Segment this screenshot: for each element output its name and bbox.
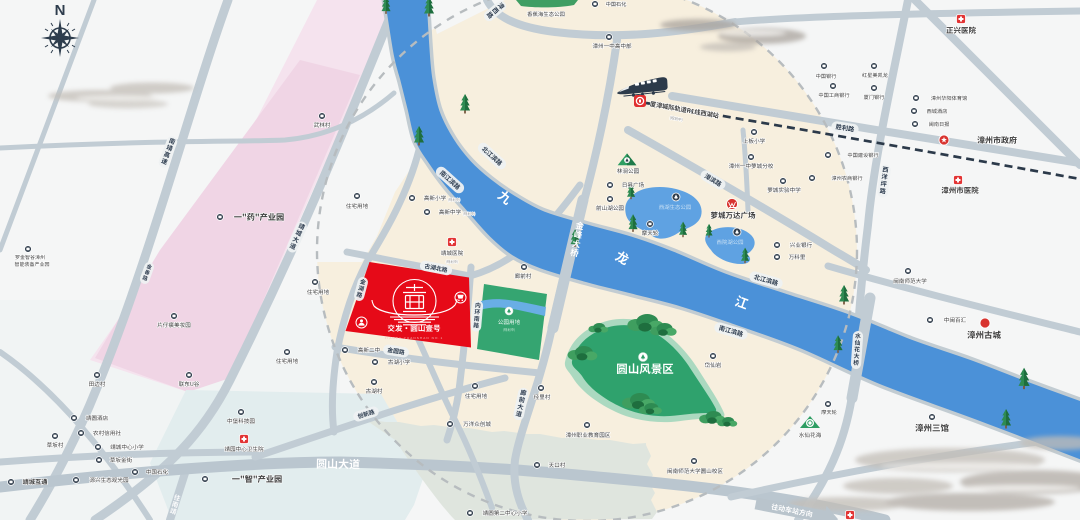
- svg-text:N: N: [55, 2, 66, 19]
- svg-text:JIAOFA YUANSHAN NO.1: JIAOFA YUANSHAN NO.1: [385, 336, 444, 340]
